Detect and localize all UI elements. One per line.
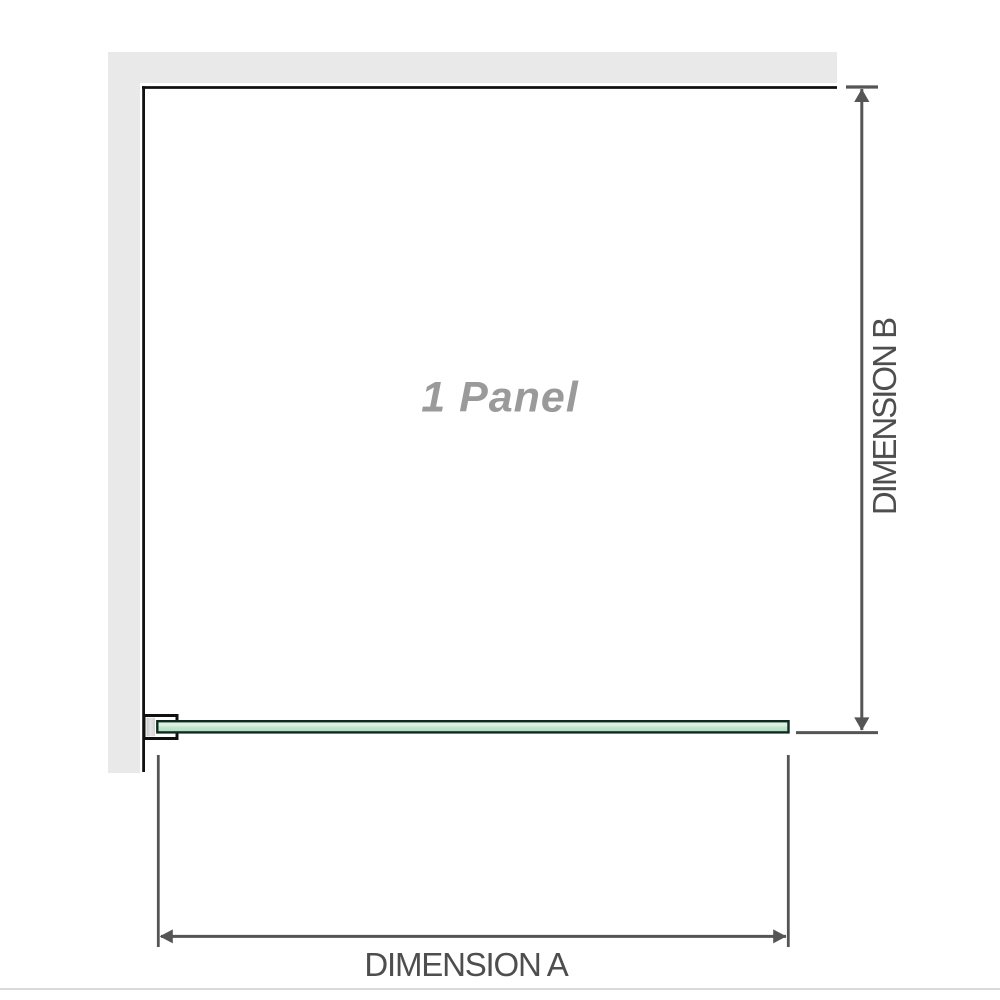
svg-text:1 Panel: 1 Panel xyxy=(421,374,579,422)
svg-text:DIMENSION B: DIMENSION B xyxy=(866,318,903,515)
svg-text:DIMENSION A: DIMENSION A xyxy=(364,946,568,983)
